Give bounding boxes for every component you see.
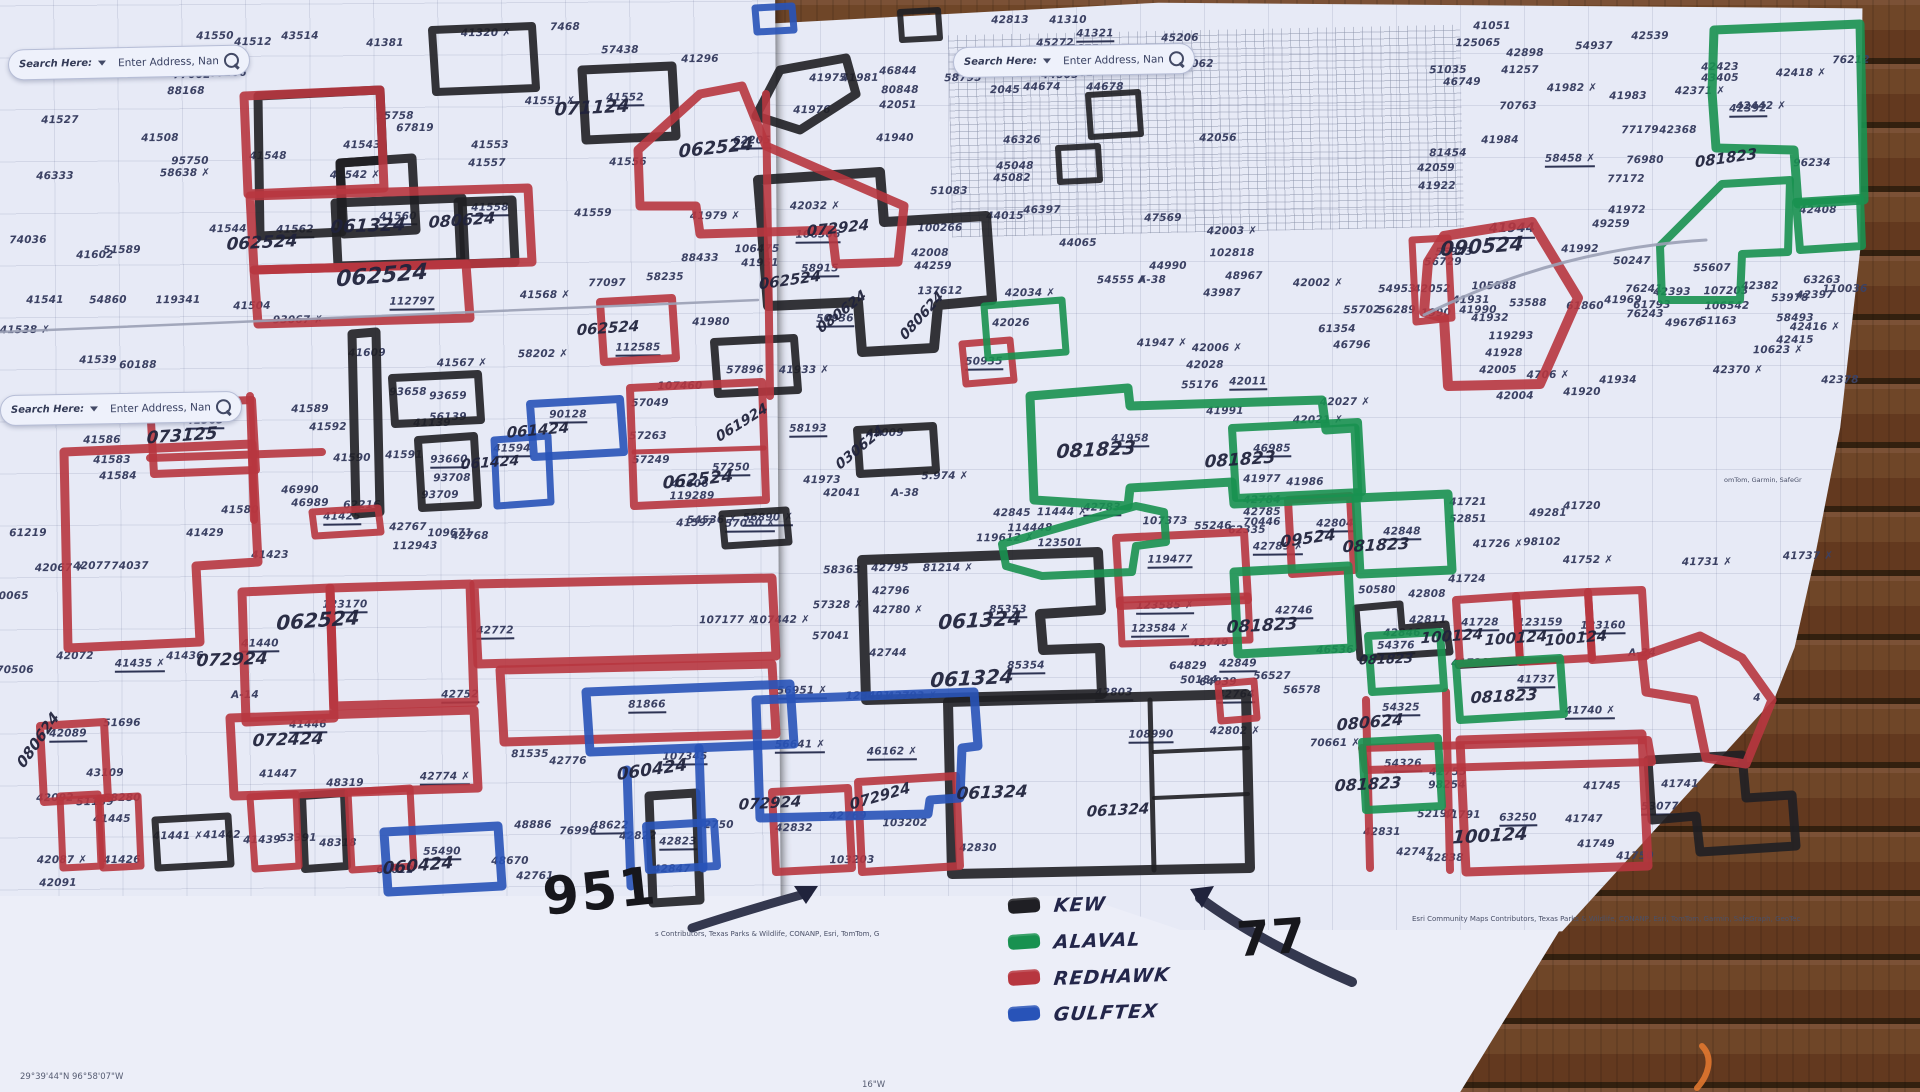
search-mode-label[interactable]: Search Here: — [964, 56, 1037, 68]
legend-row: REDHAWK — [1008, 966, 1170, 988]
legend-swatch-alaval — [1008, 932, 1041, 949]
search-icon[interactable] — [216, 399, 231, 414]
search-icon[interactable] — [224, 53, 239, 68]
chevron-down-icon[interactable] — [98, 60, 106, 65]
coordinates-readout: 29°39'44"N 96°58'07"W — [20, 1072, 123, 1082]
legend-row: ALAVAL — [1008, 930, 1140, 952]
photo-annotated-parcel-maps: { "colors":{"black":"#1f1f24","red":"#b7… — [0, 0, 1920, 1092]
legend-swatch-kew — [1008, 896, 1041, 913]
search-input[interactable]: Enter Address, Name, or ID — [110, 401, 210, 415]
paper-sheet-left — [0, 0, 781, 942]
orange-marker-outline — [1697, 1046, 1709, 1088]
legend-label: ALAVAL — [1053, 928, 1142, 953]
search-icon[interactable] — [1169, 51, 1184, 66]
attribution-edge-fragment: omTom, Garmin, SafeGr — [1724, 476, 1802, 484]
search-mode-label[interactable]: Search Here: — [19, 58, 92, 71]
legend-swatch-gulftex — [1008, 1004, 1041, 1021]
chevron-down-icon[interactable] — [1043, 58, 1051, 63]
search-bar-3[interactable]: Search Here:Enter Address, Name, or ID — [953, 43, 1196, 78]
bottom-center-coordinate-fragment: 16"W — [862, 1080, 885, 1090]
search-input[interactable]: Enter Address, Name, or ID — [118, 55, 218, 69]
legend-label: GULFTEX — [1053, 1000, 1159, 1026]
search-mode-label[interactable]: Search Here: — [11, 404, 84, 416]
legend-swatch-redhawk — [1008, 968, 1041, 985]
attribution-right: Esri Community Maps Contributors, Texas … — [1412, 915, 1800, 923]
search-input[interactable]: Enter Address, Name, or ID — [1063, 53, 1163, 67]
search-bar-1[interactable]: Search Here:Enter Address, Name, or ID — [8, 44, 251, 80]
attribution-left: s Contributors, Texas Parks & Wildlife, … — [655, 930, 879, 938]
legend-row: GULFTEX — [1008, 1002, 1158, 1024]
search-bar-2[interactable]: Search Here:Enter Address, Name, or ID — [0, 391, 242, 426]
chevron-down-icon[interactable] — [90, 406, 98, 411]
legend-label: REDHAWK — [1053, 964, 1171, 990]
legend-label: KEW — [1053, 893, 1107, 917]
legend-row: KEW — [1008, 894, 1106, 916]
